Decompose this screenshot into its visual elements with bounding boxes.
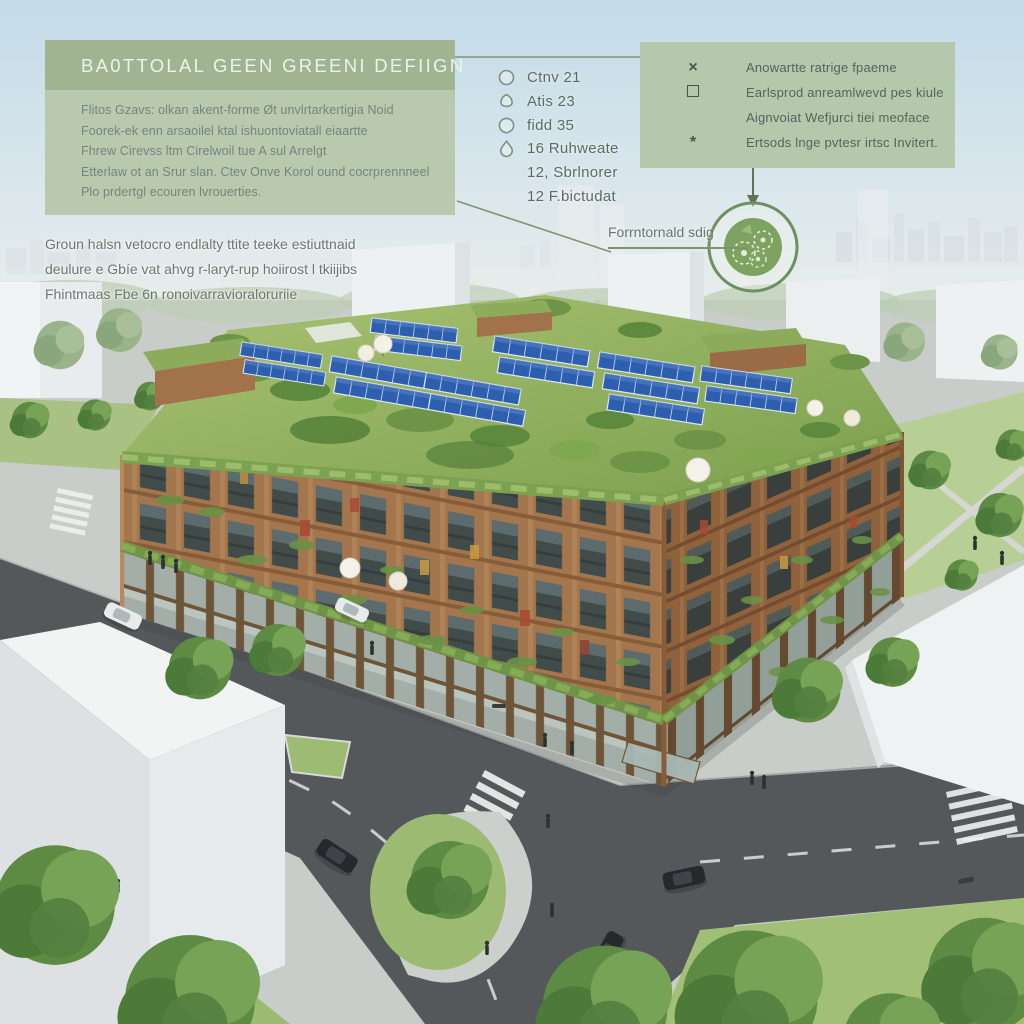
title-box-body: Flitos Gzavs: olkan akent-forme Øt unvlr… <box>45 90 455 215</box>
feature-item: Earlsprod anreamlwevd pes kiule <box>640 80 955 105</box>
legend-item: 12, Sbrlnorer <box>497 161 619 185</box>
legend-item: Atis 23 <box>497 90 619 114</box>
sub-note-line: Fhintmaas Fbe 6n ronoivarravioraloruriie <box>45 282 357 307</box>
sub-note-line: Groun halsn vetocro endlalty ttite teeke… <box>45 232 357 257</box>
title-box-header: BA0TTOLAL GEEN GREENI DEFIIGN <box>45 40 455 90</box>
feature-box: × Anowartte ratrige fpaeme Earlsprod anr… <box>640 42 955 168</box>
asterisk-icon: * <box>640 135 746 151</box>
legend-label: 16 Ruhweate <box>527 140 619 157</box>
legend-item: 12 F.bictudat <box>497 184 619 208</box>
sub-note-line: deulure e Gbíe vat ahvg r-laryt-rup hoii… <box>45 257 357 282</box>
feature-item: × Anowartte ratrige fpaeme <box>640 55 955 80</box>
sub-note: Groun halsn vetocro endlalty ttite teeke… <box>45 232 357 307</box>
badge-label-text: Forrntornald sdig <box>608 224 714 240</box>
legend-label: 12, Sbrlnorer <box>527 164 618 181</box>
legend-item: 16 Ruhweate <box>497 137 619 161</box>
legend-label: fidd 35 <box>527 117 574 134</box>
feature-label: Anowartte ratrige fpaeme <box>746 60 897 75</box>
legend-item: Ctnv 21 <box>497 66 619 90</box>
median-island <box>285 735 350 778</box>
legend-label: 12 F.bictudat <box>527 188 616 205</box>
pin-icon <box>497 116 516 135</box>
legend-label: Ctnv 21 <box>527 69 581 86</box>
feature-label: Ertsods lnge pvtesr irtsc Invitert. <box>746 135 938 150</box>
feature-label: Earlsprod anreamlwevd pes kiule <box>746 85 944 100</box>
circle-icon <box>497 68 516 87</box>
badge-label: Forrntornald sdig <box>608 224 748 249</box>
title-box-line: Flitos Gzavs: olkan akent-forme Øt unvlr… <box>81 100 443 121</box>
title-box-line: Etterlaw ot an Srur slan. Ctev Onve Koro… <box>81 162 443 183</box>
legend-item: fidd 35 <box>497 113 619 137</box>
feature-item: * Ertsods lnge pvtesr irtsc Invitert. <box>640 130 955 155</box>
stats-legend: Ctnv 21 Atis 23 fidd 35 16 Ruhweate 12, … <box>497 66 619 208</box>
feature-label: Aignvoiat Wefjurci tiei meoface <box>746 110 930 125</box>
title-box-line: Fhrew Cirevss ltm Cirelwoil tue A sul Ar… <box>81 141 443 162</box>
title-box-line: Plo prdertgl ecouren lvrouerties. <box>81 182 443 203</box>
drop-icon <box>497 139 516 158</box>
square-icon <box>640 85 746 101</box>
x-icon: × <box>640 60 746 76</box>
feature-item: Aignvoiat Wefjurci tiei meoface <box>640 105 955 130</box>
infographic-canvas: BA0TTOLAL GEEN GREENI DEFIIGN Flitos Gza… <box>0 0 1024 1024</box>
title-box: BA0TTOLAL GEEN GREENI DEFIIGN Flitos Gza… <box>45 40 455 215</box>
legend-label: Atis 23 <box>527 93 575 110</box>
title-box-line: Foorek-ek enn arsaoilel ktal ishuontovia… <box>81 121 443 142</box>
page-title: BA0TTOLAL GEEN GREENI DEFIIGN <box>81 55 437 77</box>
leaf-icon <box>497 92 516 111</box>
